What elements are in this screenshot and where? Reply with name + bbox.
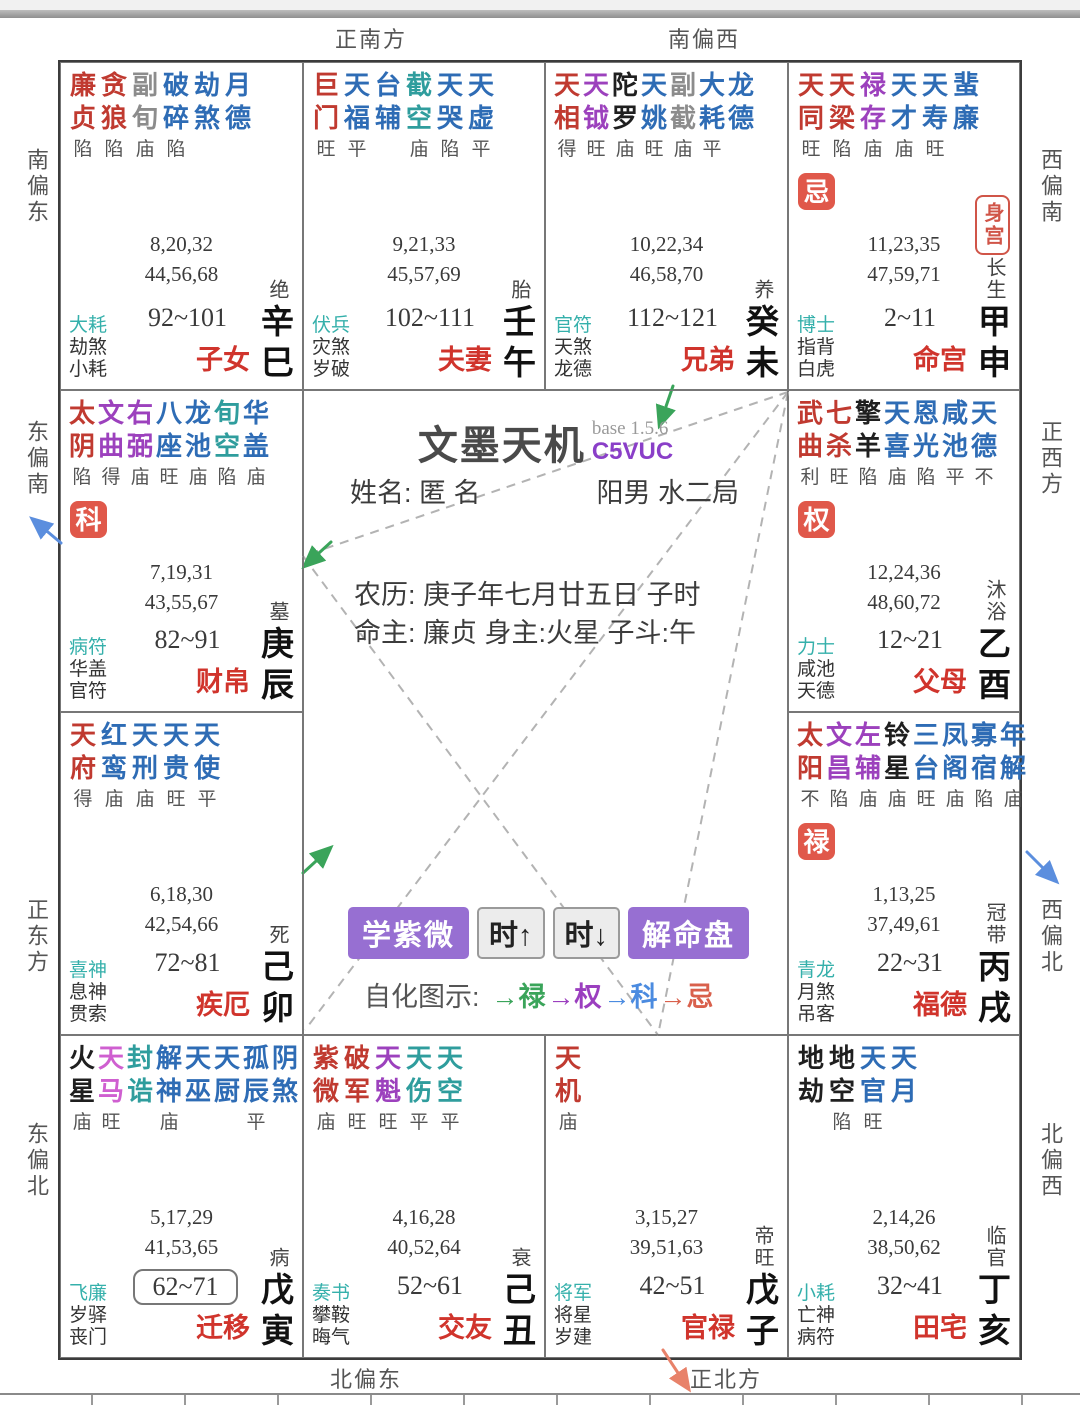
stem-branch: 甲申 — [978, 301, 1011, 383]
star-minor: 天贵旺 — [161, 719, 191, 812]
stem-branch: 辛巳 — [261, 301, 294, 383]
dir-right-2: 正西方 — [1034, 420, 1066, 498]
palace-name: 迁移 — [196, 1306, 250, 1345]
star-malefic: 火星庙 — [68, 1042, 96, 1135]
sihua-legend-item: →权 — [548, 982, 602, 1012]
palace-name: 子女 — [196, 338, 250, 377]
star-malefic: 擎羊陷 — [854, 397, 882, 490]
life-master-line: 命主: 廉贞 身主:火星 子斗:午 — [354, 611, 696, 650]
star-minor: 破碎陷 — [161, 69, 191, 162]
star-minor: 龙德 — [727, 69, 755, 162]
palace-jiaoyou[interactable]: 紫微庙破军旺天魁旺天伤平天空平4,16,2840,52,64奏书攀鞍晦气52~6… — [303, 1035, 545, 1358]
app-version: base 1.5.6 — [592, 417, 673, 440]
star-minor: 年解庙 — [999, 719, 1027, 812]
sihua-legend-item: →禄 — [492, 982, 546, 1012]
decade-range: 112~121 — [604, 303, 741, 333]
star-major: 廉贞陷 — [68, 69, 98, 162]
year-gods: 将军将星岁建 — [554, 1283, 592, 1349]
dir-left-4: 东偏北 — [20, 1122, 52, 1200]
sihua-legend: 自化图示: →禄→权→科→忌 — [364, 975, 714, 1014]
stem-branch: 己卯 — [261, 946, 294, 1028]
life-stage: 临官 — [980, 1225, 1009, 1269]
decade-range: 22~31 — [847, 948, 973, 978]
life-stage: 冠带 — [980, 902, 1009, 946]
year-gods: 大耗劫煞小耗 — [69, 315, 107, 381]
palace-jie[interactable]: 天府得红鸾庙天刑庙天贵旺天使平6,18,3042,54,66喜神息神贯索72~8… — [60, 712, 303, 1035]
year-gods: 奏书攀鞍晦气 — [312, 1283, 350, 1349]
star-minor: 凤阁庙 — [941, 719, 969, 812]
star-major: 天相得 — [553, 69, 581, 162]
star-list: 天同旺天梁陷禄存庙天才庙天寿旺蜚廉 — [796, 69, 981, 162]
toolbar-button[interactable]: 时↑ — [477, 907, 545, 959]
star-minor: 八座旺 — [155, 397, 183, 490]
profile-name: 姓名: 匿 名 — [350, 471, 481, 510]
life-stage: 病 — [263, 1247, 292, 1269]
palace-zinv[interactable]: 廉贞陷贪狼陷副旬庙破碎陷劫煞 月德 8,20,3244,56,68大耗劫煞小耗9… — [60, 62, 303, 390]
life-stage: 墓 — [263, 601, 292, 623]
star-list: 紫微庙破军旺天魁旺天伤平天空平 — [311, 1042, 465, 1135]
stem-branch: 丙戌 — [978, 946, 1011, 1028]
palace-fumu[interactable]: 武曲利七杀旺擎羊陷天喜庙恩光陷咸池平天德不权12,24,3648,60,72力士… — [788, 390, 1020, 712]
star-minor: 月德 — [223, 69, 253, 162]
star-minor: 咸池平 — [941, 397, 969, 490]
app-title: 文墨天机 — [418, 413, 586, 471]
star-list: 太阴陷文曲得右弼庙八座旺龙池庙旬空陷华盖庙 — [68, 397, 270, 490]
star-lucky: 天钺旺 — [582, 69, 610, 162]
star-lucky: 右弼庙 — [126, 397, 154, 490]
star-minor: 恩光陷 — [912, 397, 940, 490]
top-strip — [0, 0, 1080, 10]
star-minor: 天德不 — [970, 397, 998, 490]
dir-left-1: 南偏东 — [20, 148, 52, 226]
life-stage: 养 — [748, 279, 777, 301]
star-list: 太阳不文昌陷左辅庙铃星庙三台旺凤阁庙寡宿陷年解庙 — [796, 719, 1027, 812]
dir-north-east-b: 北偏东 — [330, 1362, 402, 1394]
star-list: 天府得红鸾庙天刑庙天贵旺天使平 — [68, 719, 222, 812]
stem-branch: 庚辰 — [261, 623, 294, 705]
star-teal: 天空平 — [435, 1042, 465, 1135]
star-minor: 天刑庙 — [130, 719, 160, 812]
star-minor: 天巫 — [184, 1042, 212, 1135]
year-gods: 官符天煞龙德 — [554, 315, 592, 381]
life-stage: 死 — [263, 924, 292, 946]
star-list: 巨门旺天福平台辅 截空庙天哭陷天虚平 — [311, 69, 496, 162]
star-list: 天相得天钺旺陀罗庙天姚旺副截庙大耗平龙德 — [553, 69, 755, 162]
life-stage: 胎 — [505, 279, 534, 301]
star-minor: 天福平 — [342, 69, 372, 162]
sihua-legend-label: 自化图示: — [364, 975, 480, 1014]
palace-name: 命宫 — [913, 338, 967, 377]
star-list: 廉贞陷贪狼陷副旬庙破碎陷劫煞 月德 — [68, 69, 253, 162]
decade-range: 82~91 — [119, 625, 256, 655]
palace-name: 福德 — [913, 983, 967, 1022]
palace-minggong[interactable]: 天同旺天梁陷禄存庙天才庙天寿旺蜚廉 忌身宫11,23,3547,59,71博士指… — [788, 62, 1020, 390]
life-stage: 绝 — [263, 279, 292, 301]
star-teal: 封诰 — [126, 1042, 154, 1135]
star-minor: 天虚平 — [466, 69, 496, 162]
palace-name: 交友 — [438, 1306, 492, 1345]
palace-name: 父母 — [913, 660, 967, 699]
star-minor: 天使平 — [192, 719, 222, 812]
decade-range: 52~61 — [362, 1271, 498, 1301]
star-minor: 天才庙 — [889, 69, 919, 162]
stem-branch: 壬午 — [503, 301, 536, 383]
palace-name: 夫妻 — [438, 338, 492, 377]
gender-bureau: 阳男 水二局 — [596, 471, 739, 510]
sequence-numbers: 6,18,3042,54,66 — [91, 879, 272, 939]
star-minor: 寡宿陷 — [970, 719, 998, 812]
palace-name: 兄弟 — [681, 338, 735, 377]
stem-branch: 戊子 — [746, 1269, 779, 1351]
sequence-numbers: 2,14,2638,50,62 — [819, 1202, 989, 1262]
sequence-numbers: 9,21,3345,57,69 — [334, 229, 514, 289]
app-title-row: 文墨天机 base 1.5.6 C5VUC — [304, 413, 787, 471]
star-minor: 天官旺 — [858, 1042, 888, 1135]
palace-name: 财帛 — [196, 660, 250, 699]
star-gray: 副旬庙 — [130, 69, 160, 162]
sihua-legend-item: →科 — [604, 982, 658, 1012]
chart-code: C5VUC — [592, 440, 673, 463]
star-minor: 孤辰平 — [242, 1042, 270, 1135]
stem-branch: 癸未 — [746, 301, 779, 383]
star-major: 破军旺 — [342, 1042, 372, 1135]
palace-xiongdi[interactable]: 天相得天钺旺陀罗庙天姚旺副截庙大耗平龙德 10,22,3446,58,70官符天… — [545, 62, 788, 390]
year-gods: 青龙月煞吊客 — [797, 960, 835, 1026]
star-malefic: 铃星庙 — [883, 719, 911, 812]
profile-row: 姓名: 匿 名 阳男 水二局 — [350, 471, 739, 510]
palace-name: 疾厄 — [196, 983, 250, 1022]
sequence-numbers: 7,19,3143,55,67 — [91, 557, 272, 617]
palace-fude[interactable]: 太阳不文昌陷左辅庙铃星庙三台旺凤阁庙寡宿陷年解庙禄1,13,2537,49,61… — [788, 712, 1020, 1035]
sequence-numbers: 4,16,2840,52,64 — [334, 1202, 514, 1262]
toolbar-button[interactable]: 时↓ — [553, 907, 621, 959]
sequence-numbers: 12,24,3648,60,72 — [819, 557, 989, 617]
stem-branch: 己丑 — [503, 1269, 536, 1351]
sihua-badge: 忌 — [798, 173, 835, 210]
star-minor: 华盖庙 — [242, 397, 270, 490]
star-lucky: 左辅庙 — [854, 719, 882, 812]
star-list: 火星庙天马旺封诰 解神庙天巫 天厨 孤辰平阴煞 — [68, 1042, 299, 1135]
sihua-badge: 禄 — [798, 823, 835, 860]
sequence-numbers: 10,22,3446,58,70 — [576, 229, 757, 289]
toolbar-button[interactable]: 解命盘 — [628, 907, 749, 959]
palace-fuqi[interactable]: 巨门旺天福平台辅 截空庙天哭陷天虚平9,21,3345,57,69伏兵灾煞岁破1… — [303, 62, 545, 390]
star-lucky: 文昌陷 — [825, 719, 853, 812]
life-stage: 衰 — [505, 1247, 534, 1269]
palace-guanlu[interactable]: 天机庙3,15,2739,51,63将军将星岁建42~51官禄戊子帝旺 — [545, 1035, 788, 1358]
decade-range: 102~111 — [362, 303, 498, 333]
palace-qianyi[interactable]: 火星庙天马旺封诰 解神庙天巫 天厨 孤辰平阴煞 5,17,2941,53,65飞… — [60, 1035, 303, 1358]
life-stage: 长生 — [980, 257, 1009, 301]
star-major: 天同旺 — [796, 69, 826, 162]
dir-north: 正北方 — [690, 1362, 762, 1394]
stem-branch: 乙酉 — [978, 623, 1011, 705]
dir-left-2: 东偏南 — [20, 420, 52, 498]
star-minor: 阴煞 — [271, 1042, 299, 1135]
year-gods: 病符华盖官符 — [69, 637, 107, 703]
sequence-numbers: 8,20,3244,56,68 — [91, 229, 272, 289]
star-minor: 天厨 — [213, 1042, 241, 1135]
dir-right-1: 西偏南 — [1034, 148, 1066, 226]
life-stage: 帝旺 — [748, 1225, 777, 1269]
sequence-numbers: 11,23,3547,59,71 — [819, 229, 989, 289]
year-gods: 喜神息神贯索 — [69, 960, 107, 1026]
year-gods: 飞廉岁驿丧门 — [69, 1283, 107, 1349]
star-malefic: 陀罗庙 — [611, 69, 639, 162]
star-lucky: 文曲得 — [97, 397, 125, 490]
star-minor: 大耗平 — [698, 69, 726, 162]
sihua-legend-item: →忌 — [660, 982, 714, 1012]
star-list: 武曲利七杀旺擎羊陷天喜庙恩光陷咸池平天德不 — [796, 397, 998, 490]
star-gray: 副截庙 — [669, 69, 697, 162]
palace-tianzhai[interactable]: 地劫 地空陷天官旺天月 2,14,2638,50,62小耗亡神病符32~41田宅… — [788, 1035, 1020, 1358]
year-gods: 博士指背白虎 — [797, 315, 835, 381]
star-minor: 红鸾庙 — [99, 719, 129, 812]
decade-range: 62~71 — [133, 1269, 238, 1305]
star-major: 天府得 — [68, 719, 98, 812]
star-major: 太阴陷 — [68, 397, 96, 490]
lunar-date-line: 农历: 庚子年七月廿五日 子时 — [354, 573, 701, 612]
palace-name: 田宅 — [913, 1306, 967, 1345]
sequence-numbers: 1,13,2537,49,61 — [819, 879, 989, 939]
star-lucky: 天魁旺 — [373, 1042, 403, 1135]
decade-range: 2~11 — [847, 303, 973, 333]
stem-branch: 戊寅 — [261, 1269, 294, 1351]
decade-range: 32~41 — [847, 1271, 973, 1301]
dir-right-4: 北偏西 — [1034, 1122, 1066, 1200]
star-minor: 台辅 — [373, 69, 403, 162]
star-list: 天机庙 — [553, 1042, 583, 1135]
palace-name: 官禄 — [681, 1306, 735, 1345]
star-minor: 三台旺 — [912, 719, 940, 812]
decade-range: 42~51 — [604, 1271, 741, 1301]
star-teal: 天伤平 — [404, 1042, 434, 1135]
decade-range: 92~101 — [119, 303, 256, 333]
star-major: 天梁陷 — [827, 69, 857, 162]
palace-caibo[interactable]: 太阴陷文曲得右弼庙八座旺龙池庙旬空陷华盖庙科7,19,3143,55,67病符华… — [60, 390, 303, 712]
star-minor: 天月 — [889, 1042, 919, 1135]
star-malefic: 地劫 — [796, 1042, 826, 1135]
year-gods: 力士咸池天德 — [797, 637, 835, 703]
stem-branch: 丁亥 — [978, 1269, 1011, 1351]
star-minor: 天哭陷 — [435, 69, 465, 162]
star-minor: 天寿旺 — [920, 69, 950, 162]
star-magenta: 天马旺 — [97, 1042, 125, 1135]
center-panel: 文墨天机 base 1.5.6 C5VUC 姓名: 匿 名 阳男 水二局 农历:… — [303, 390, 788, 1035]
star-major: 七杀旺 — [825, 397, 853, 490]
version-stack: base 1.5.6 C5VUC — [592, 413, 673, 463]
toolbar-button[interactable]: 学紫微 — [348, 907, 469, 959]
star-malefic: 地空陷 — [827, 1042, 857, 1135]
decade-range: 72~81 — [119, 948, 256, 978]
life-stage: 沐浴 — [980, 579, 1009, 623]
button-row: 学紫微时↑时↓解命盘 — [348, 907, 749, 959]
star-major: 天机庙 — [553, 1042, 583, 1135]
star-minor: 蜚廉 — [951, 69, 981, 162]
sihua-badge: 科 — [70, 501, 107, 538]
dir-right-3: 西偏北 — [1034, 898, 1066, 976]
star-teal: 截空庙 — [404, 69, 434, 162]
dir-south-west: 南偏西 — [668, 22, 740, 54]
dir-left-3: 正东方 — [20, 898, 52, 976]
star-minor: 天姚旺 — [640, 69, 668, 162]
chart-grid: 文墨天机 base 1.5.6 C5VUC 姓名: 匿 名 阳男 水二局 农历:… — [58, 60, 1022, 1360]
star-lucky: 禄存庙 — [858, 69, 888, 162]
star-minor: 解神庙 — [155, 1042, 183, 1135]
decade-range: 12~21 — [847, 625, 973, 655]
bottom-table-edge — [0, 1393, 1080, 1405]
star-major: 武曲利 — [796, 397, 824, 490]
star-teal: 旬空陷 — [213, 397, 241, 490]
star-minor: 天喜庙 — [883, 397, 911, 490]
sequence-numbers: 5,17,2941,53,65 — [91, 1202, 272, 1262]
star-major: 贪狼陷 — [99, 69, 129, 162]
star-major: 紫微庙 — [311, 1042, 341, 1135]
star-major: 巨门旺 — [311, 69, 341, 162]
dir-south: 正南方 — [335, 22, 407, 54]
star-minor: 龙池庙 — [184, 397, 212, 490]
sequence-numbers: 3,15,2739,51,63 — [576, 1202, 757, 1262]
year-gods: 小耗亡神病符 — [797, 1283, 835, 1349]
top-divider-bar — [0, 10, 1080, 18]
year-gods: 伏兵灾煞岁破 — [312, 315, 350, 381]
sihua-legend-items: →禄→权→科→忌 — [490, 975, 714, 1014]
star-minor: 劫煞 — [192, 69, 222, 162]
star-major: 太阳不 — [796, 719, 824, 812]
star-list: 地劫 地空陷天官旺天月 — [796, 1042, 919, 1135]
sihua-badge: 权 — [798, 501, 835, 538]
